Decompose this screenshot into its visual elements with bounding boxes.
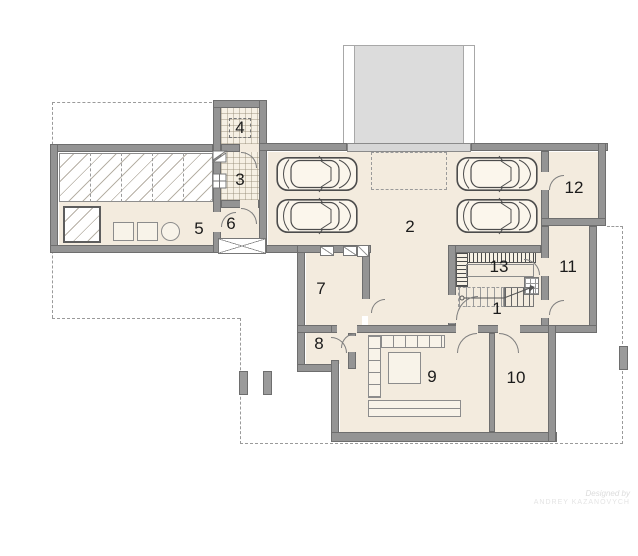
room-label-13: 13 xyxy=(490,257,509,277)
room-label-9: 9 xyxy=(427,367,436,387)
wall xyxy=(541,218,606,226)
room-label-8: 8 xyxy=(314,334,323,354)
terrace-divider xyxy=(152,153,153,202)
room-label-7: 7 xyxy=(316,279,325,299)
wall xyxy=(589,226,597,333)
chute-shelf-icon xyxy=(212,150,228,197)
room-floor-7 xyxy=(306,253,362,325)
footprint-dash-right xyxy=(622,226,623,444)
coffee-table xyxy=(388,352,421,384)
wall xyxy=(50,144,213,152)
wall xyxy=(259,100,267,253)
wall xyxy=(50,144,58,253)
sideboard xyxy=(368,400,461,417)
room-label-10: 10 xyxy=(507,368,526,388)
door-opening xyxy=(541,300,549,318)
pillar xyxy=(619,346,628,370)
footprint-dash-top-left xyxy=(52,102,212,103)
window xyxy=(357,245,369,257)
car-icon xyxy=(456,155,538,198)
door-opening xyxy=(213,212,221,232)
lightwell-hatch xyxy=(63,206,101,243)
room-label-5: 5 xyxy=(194,219,203,239)
room-label-6: 6 xyxy=(226,214,235,234)
door-opening xyxy=(498,325,520,333)
room-label-11: 11 xyxy=(559,257,577,277)
footprint-dash-mid xyxy=(52,318,240,319)
door-opening xyxy=(456,325,478,333)
footprint-dash-top-right xyxy=(607,226,623,227)
door-opening xyxy=(337,325,357,333)
room-label-1: 1 xyxy=(492,299,501,319)
appliance xyxy=(113,222,134,241)
car-icon xyxy=(276,155,358,198)
wall xyxy=(259,143,347,151)
window-well xyxy=(218,238,266,254)
terrace-divider xyxy=(90,153,91,202)
wall xyxy=(331,360,339,442)
sofa xyxy=(368,335,381,398)
door-opening xyxy=(240,144,259,152)
terrace-divider xyxy=(183,153,184,202)
wall xyxy=(448,245,541,253)
wall xyxy=(50,245,218,253)
appliance xyxy=(137,222,158,241)
door-opening xyxy=(362,299,370,316)
driveway-ramp xyxy=(354,45,464,144)
garage-door xyxy=(347,143,471,152)
door-opening xyxy=(448,295,456,323)
room-label-2: 2 xyxy=(405,217,414,237)
wall xyxy=(489,333,495,432)
window xyxy=(343,246,357,256)
designer-watermark: Designed by Andrey Kazanovych xyxy=(510,489,630,508)
door-opening xyxy=(240,200,258,208)
terrace-hatch xyxy=(59,153,213,202)
wall xyxy=(471,143,608,151)
window xyxy=(320,246,334,256)
footprint-dash-bottom xyxy=(240,443,623,444)
pillar xyxy=(239,371,248,395)
car-icon xyxy=(276,197,358,240)
room-label-3: 3 xyxy=(235,170,244,190)
door-opening xyxy=(541,172,549,190)
boiler xyxy=(161,222,180,241)
pillar xyxy=(263,371,272,395)
door-opening xyxy=(541,258,549,276)
wall xyxy=(297,245,305,372)
wall xyxy=(331,432,557,442)
wall xyxy=(548,325,556,442)
room-label-12: 12 xyxy=(565,178,584,198)
room-floor-11 xyxy=(549,226,589,333)
room-label-4: 4 xyxy=(235,118,244,138)
watermark-line2: Andrey Kazanovych xyxy=(510,499,630,508)
wall xyxy=(598,143,606,226)
garage-entry-dashed-zone xyxy=(371,152,447,190)
terrace-divider xyxy=(121,153,122,202)
car-icon xyxy=(456,197,538,240)
floor-plan: 1 2 3 4 5 6 7 8 9 10 11 12 13 Designed b… xyxy=(0,0,638,556)
watermark-line1: Designed by xyxy=(510,489,630,499)
